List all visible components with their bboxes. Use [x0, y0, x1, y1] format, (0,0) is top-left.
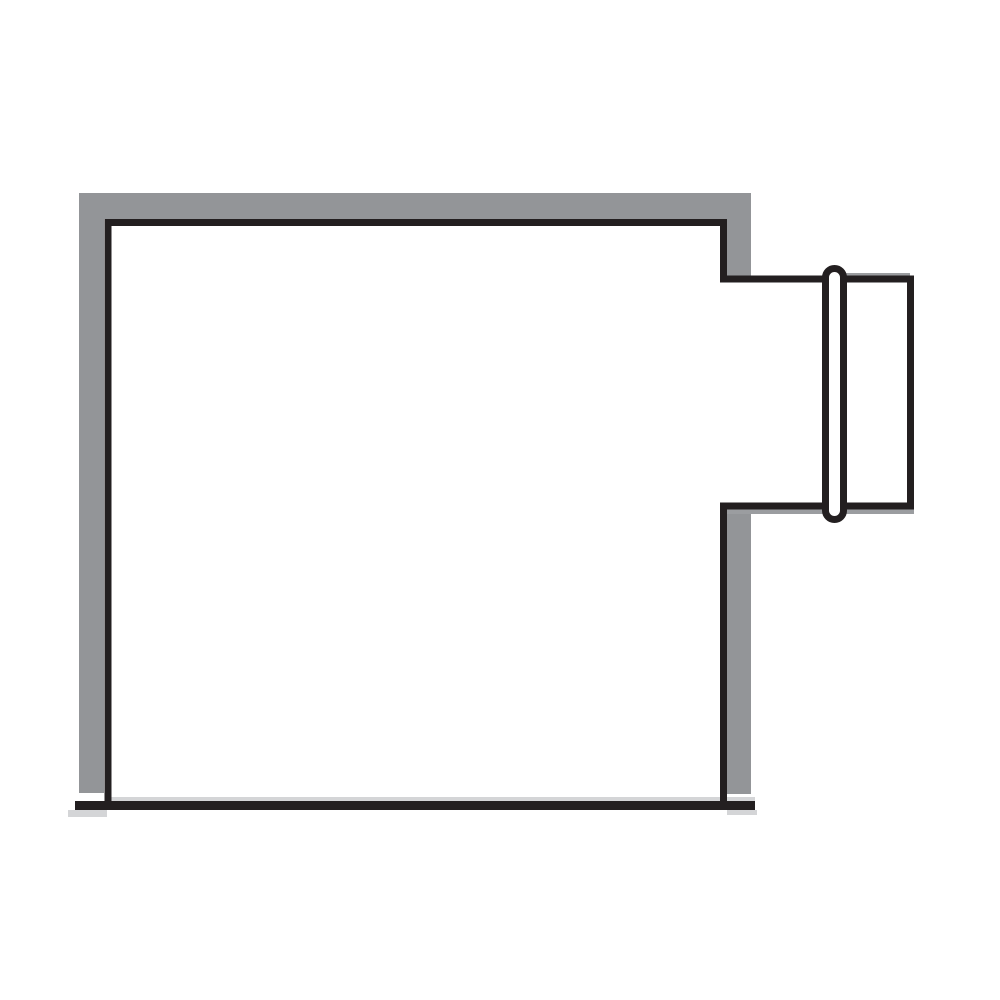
base-line-highlight — [105, 797, 755, 801]
collar-shadow-bottom — [727, 509, 914, 514]
shadow-band-right-lower — [727, 510, 751, 794]
collar-bead-gasket — [826, 269, 844, 520]
shadow-band-top — [79, 193, 751, 219]
base-line-shadow-left — [68, 810, 107, 817]
shadow-band-left — [79, 193, 104, 793]
base-line-shadow-right — [727, 810, 757, 815]
drawing-canvas — [0, 0, 1000, 1000]
shadow-band-right-upper — [727, 193, 751, 276]
duct-fitting-diagram — [0, 0, 1000, 1000]
